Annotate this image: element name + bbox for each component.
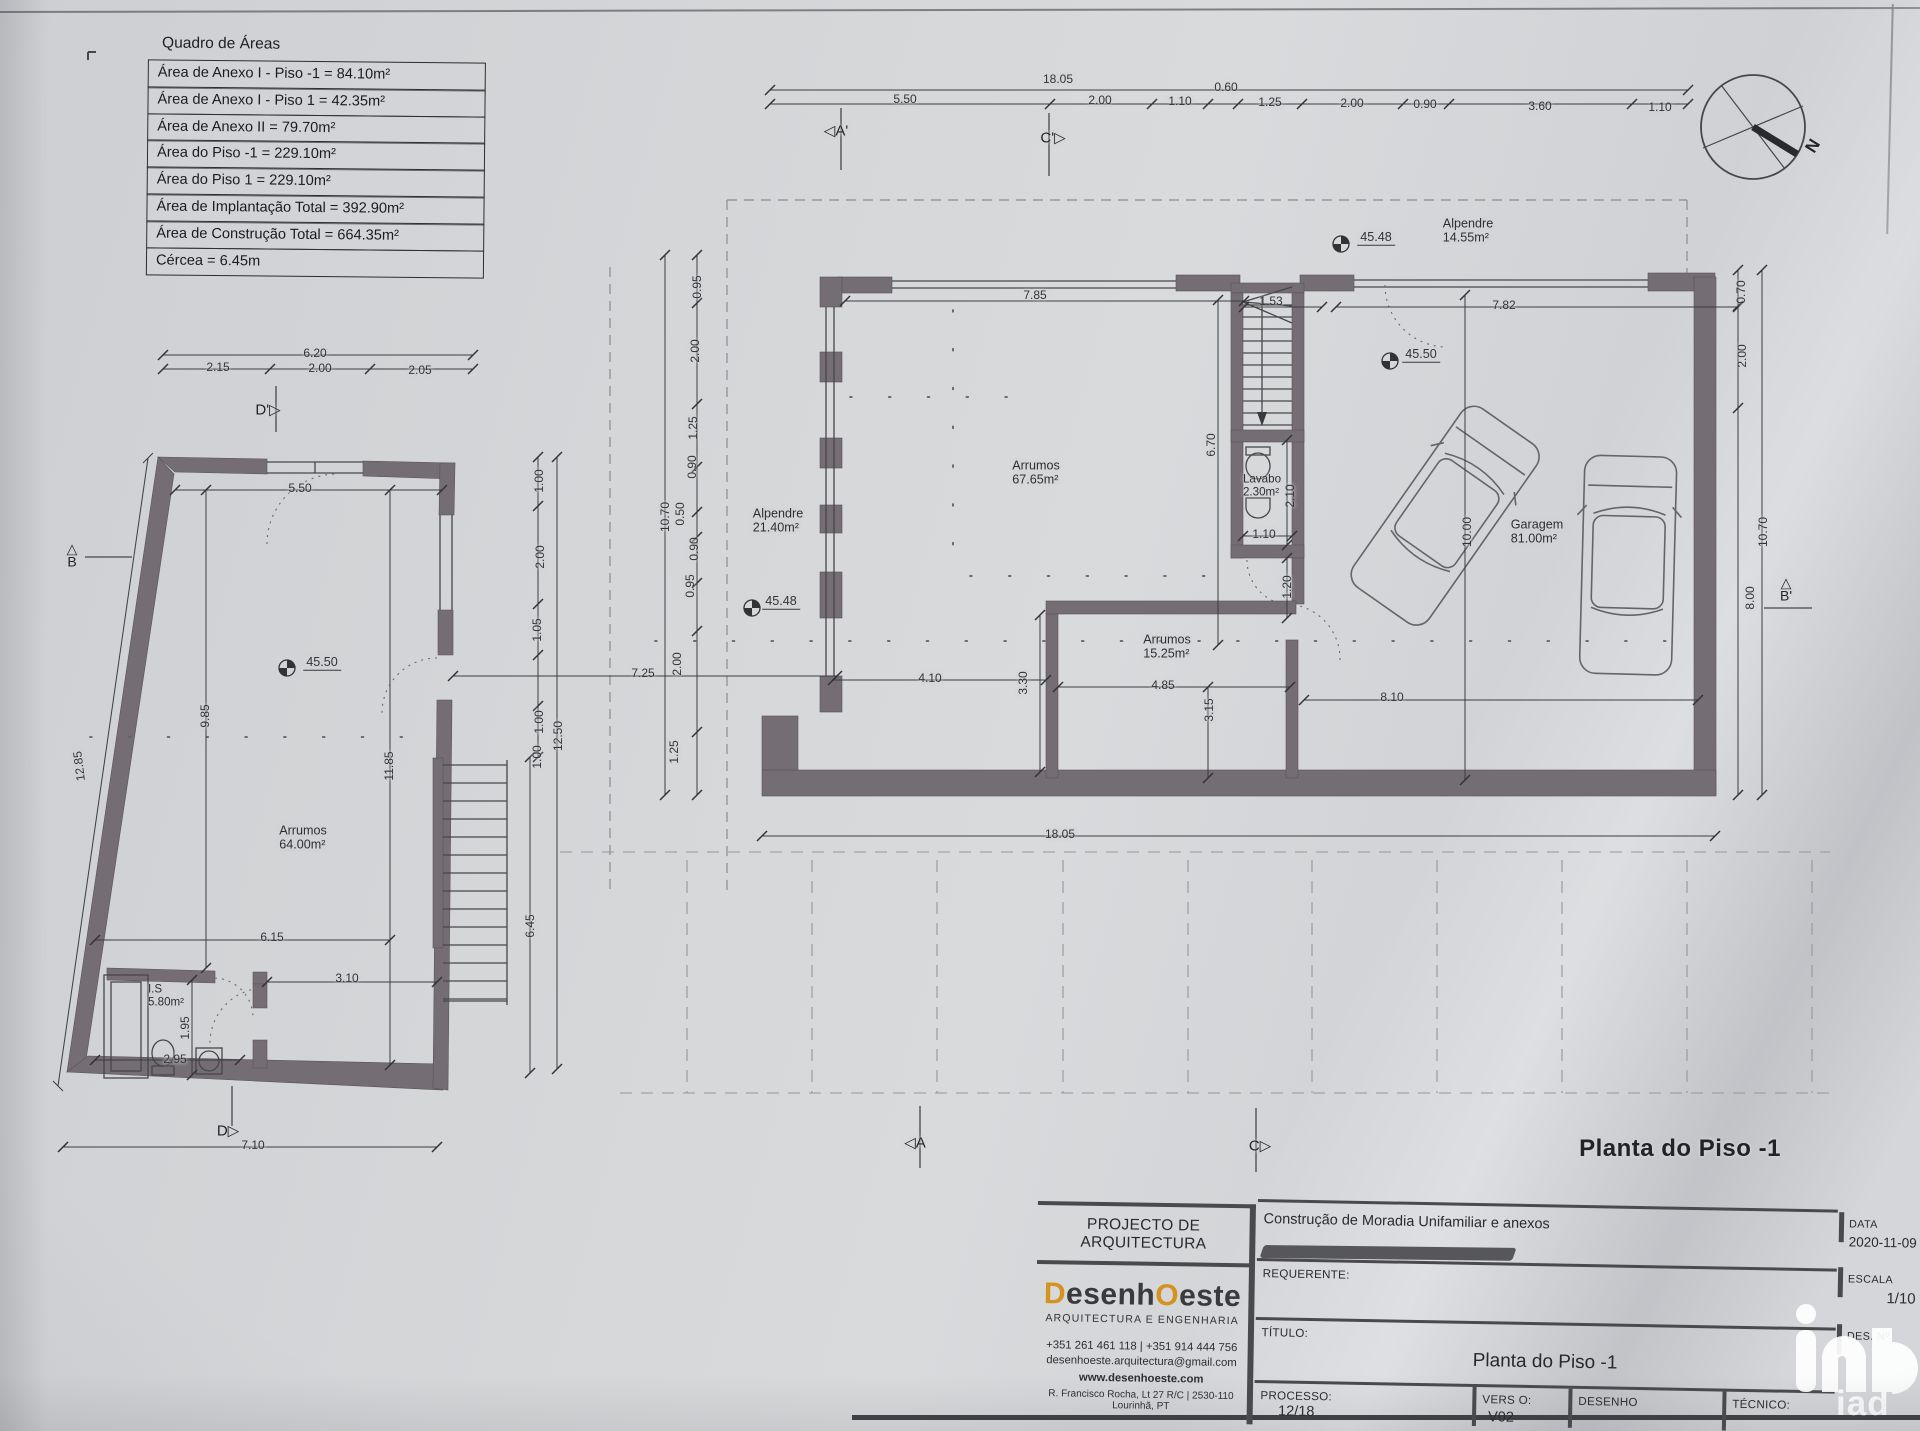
dim-label: 1.25 [687,416,701,439]
dim-label: 1.25 [668,740,682,763]
versao-label: VERS O: [1482,1393,1531,1407]
dim-label: 1.00 [531,745,545,768]
company-address: R. Francisco Rocha, Lt 27 R/C | 2530-110… [1035,1388,1247,1413]
dim-label: 8.00 [1744,586,1758,609]
desenho-label: DESENHO [1578,1395,1638,1409]
dim-label: 0.95 [691,275,705,298]
title-block-project: Construção de Moradia Unifamiliar e anex… [1254,1199,1838,1431]
dim-label: 7.82 [1492,299,1515,313]
dim-label: 0.95 [684,574,698,597]
dim-label: 2.95 [163,1053,186,1067]
logo-text: esenh [1066,1277,1156,1311]
dim-label: 1.00 [533,469,547,492]
versao-value: V02 [1488,1409,1514,1425]
dim-label: 1.10 [1252,528,1275,542]
room-label-alpendre-top: Alpendre 14.55m² [1443,217,1493,246]
logo-text: este [1179,1279,1242,1313]
dim-label: 1.95 [179,1016,193,1039]
dim-label: 2.00 [534,545,548,568]
level-45-50-garage: 45.50 [1402,347,1440,363]
dim-label: 6.20 [303,347,326,361]
room-label-arrumos-annex: Arrumos 64.00m² [279,824,327,853]
dim-label: 0.90 [688,537,702,560]
data-value: 2020-11-09 [1849,1234,1920,1250]
dim-label: 5.50 [288,482,311,496]
area-table-row: Cércea = 6.45m [146,247,484,279]
title-block-company: PROJECTO DE ARQUITECTURA DesenhOeste ARQ… [1035,1201,1256,1424]
dim-label: 3.10 [335,972,358,986]
dim-label: 7.25 [631,667,654,681]
processo-value: 12/18 [1278,1403,1315,1420]
dim-label: 2.00 [689,339,703,362]
room-label-arrumos-15: Arrumos 15.25m² [1143,633,1191,662]
iad-watermark-text: iad [1836,1384,1890,1424]
dim-label: 11.85 [383,751,397,780]
dim-label: 3.30 [1017,671,1031,694]
requerente-label: REQUERENTE: [1263,1267,1350,1282]
section-marker-d-prime: D'▷ [255,401,280,418]
logo-letter-d: D [1044,1277,1067,1310]
dim-label: 6.45 [524,914,538,937]
dim-label: 2.00 [1340,97,1363,111]
dim-label: 12.50 [552,721,566,751]
dim-label: 0.90 [1413,98,1436,112]
company-email: desenhoeste.arquitectura@gmail.com [1035,1354,1247,1369]
level-45-48-top: 45.48 [1357,230,1395,246]
dim-label: 0.90 [686,455,700,478]
project-description: Construção de Moradia Unifamiliar e anex… [1263,1211,1549,1232]
dim-label: 5.50 [893,93,916,107]
dim-label: 1.10 [1648,101,1671,115]
level-45-50-annex: 45.50 [303,655,341,671]
data-label: DATA [1849,1218,1920,1231]
dim-label: 1.10 [1168,95,1191,109]
section-marker-b: △ B [67,543,78,570]
escala-label: ESCALA [1848,1273,1920,1286]
dim-label: 6.70 [1205,433,1219,456]
redacted-name [1260,1245,1517,1261]
dim-label: 6.15 [260,931,283,945]
room-label-lavabo: Lavabo 2.30m² [1243,473,1281,500]
dim-label: 8.10 [1380,691,1403,705]
dim-label: 2.00 [1088,94,1111,108]
dim-label: 0.70 [1735,280,1749,303]
dim-label: 4.10 [918,672,941,686]
room-label-alpendre-left: Alpendre 21.40m² [753,507,803,536]
dim-label: 1.05 [531,618,545,641]
compass-n-label: N [1801,136,1824,157]
section-marker-c-prime: C'▷ [1040,129,1065,146]
dim-label: 1.53 [1259,295,1282,309]
titulo-label: TÍTULO: [1261,1326,1308,1340]
dim-label: 18.05 [1045,828,1075,842]
dim-label: 12.85 [71,750,88,781]
dim-label: 0.50 [674,502,688,525]
area-table: Quadro de Áreas Área de Anexo I - Piso -… [146,34,486,278]
plan-title-label: Planta do Piso -1 [1579,1135,1781,1163]
section-marker-b-prime: △ B' [1780,577,1792,604]
titulo-value: Planta do Piso -1 [1255,1346,1835,1379]
company-logo: DesenhOeste [1036,1277,1249,1314]
dim-label: 1.25 [1258,96,1281,110]
section-marker-d: D▷ [217,1122,239,1139]
dim-label: 10.70 [659,502,673,532]
processo-label: PROCESSO: [1260,1389,1332,1403]
dim-label: 3.15 [1203,698,1217,721]
room-label-arrumos-main: Arrumos 67.65m² [1012,459,1060,488]
tecnico-label: TÉCNICO: [1732,1398,1790,1412]
company-website: www.desenhoeste.com [1035,1371,1247,1386]
section-marker-c: C▷ [1249,1137,1271,1154]
area-table-body: Área de Anexo I - Piso -1 = 84.10m²Área … [146,59,486,278]
section-marker-a: ◁A [904,1134,926,1151]
iad-watermark: iad [1790,1292,1920,1431]
drawing-sheet: 18.055.502.001.100.601.252.000.903.601.1… [0,0,1920,1431]
dim-label: 9.85 [199,704,213,727]
company-phone: +351 261 461 118 | +351 914 444 756 [1036,1339,1248,1354]
company-tagline: ARQUITECTURA E ENGENHARIA [1036,1312,1248,1327]
dim-label: 4.85 [1151,679,1174,693]
dim-label: 2.00 [671,652,685,675]
dim-label: 2.05 [408,364,431,378]
dim-label: 2.00 [1736,344,1750,367]
level-45-48-alpendre: 45.48 [762,594,800,610]
title-block-header: PROJECTO DE ARQUITECTURA [1037,1205,1250,1267]
room-label-is: I.S 5.80m² [148,983,184,1010]
dim-label: 7.85 [1023,289,1046,303]
dim-label: 0.60 [1214,81,1237,95]
dim-label: 1.00 [533,710,547,733]
section-marker-a-prime: ◁A' [824,122,848,139]
dim-label: 10.00 [1461,517,1475,547]
room-label-garagem: Garagem 81.00m² [1511,518,1564,547]
area-table-title: Quadro de Áreas [162,35,486,56]
dim-label: 2.10 [1284,484,1298,507]
logo-letter-o: O [1155,1279,1179,1312]
dim-label: 18.05 [1043,73,1073,87]
dim-label: 7.10 [241,1139,264,1153]
dim-label: 1.20 [1281,575,1295,598]
dim-label: 3.60 [1528,100,1551,114]
dim-label: 10.70 [1757,517,1771,547]
dim-label: 2.15 [206,361,229,375]
photo-background: 18.055.502.001.100.601.252.000.903.601.1… [0,0,1920,1431]
dim-label: 2.00 [308,362,331,376]
